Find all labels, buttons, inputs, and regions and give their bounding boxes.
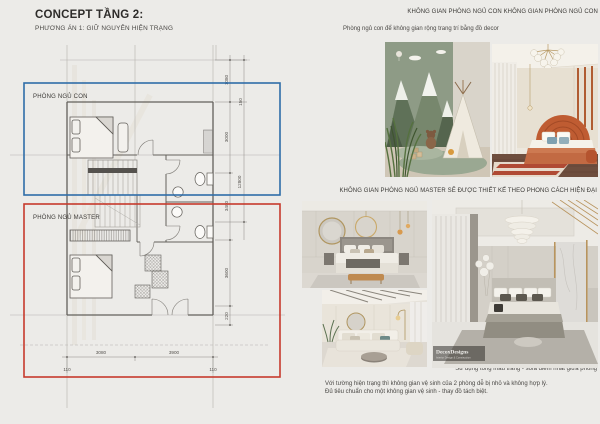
- dim-label: 3900: [169, 350, 180, 355]
- dim-label: 150: [238, 98, 243, 106]
- master-room-highlight-box: [24, 204, 280, 377]
- watermark-tagline: Interior Design & Construction: [436, 356, 471, 360]
- plan-background-watermark: [72, 65, 150, 345]
- master-table-set: [135, 255, 168, 298]
- photo-kids-room-orange-bed: [492, 44, 598, 177]
- kids-bench: [118, 123, 128, 152]
- child-section-caption: Phòng ngủ con để không gian rộng trang t…: [343, 26, 499, 32]
- window-hatched: [204, 130, 213, 153]
- child-section-header: KHÔNG GIAN PHÒNG NGỦ CON KHÔNG GIAN PHÒN…: [407, 9, 598, 15]
- page-title: CONCEPT TẦNG 2:: [35, 9, 143, 21]
- photo-master-living-sofa: [322, 290, 427, 367]
- note-line-2: Đủ tiêu chuẩn cho một không gian vệ sinh…: [325, 389, 488, 395]
- master-wardrobe: [70, 230, 130, 241]
- dim-label: 12800: [237, 175, 242, 188]
- dim-label: 3080: [96, 350, 107, 355]
- watermark-logo: DecoxDesigns: [436, 350, 468, 356]
- master-box-label: PHÒNG NGỦ MASTER: [33, 214, 100, 221]
- toilet: [195, 226, 213, 239]
- dim-label: 110: [63, 367, 71, 372]
- kids-bed: [70, 117, 113, 158]
- photo-master-bedroom-mirror: [302, 201, 427, 288]
- dim-label: 3400: [224, 200, 229, 211]
- dim-label: 110: [209, 367, 217, 372]
- child-box-label: PHÒNG NGỦ CON: [33, 93, 88, 100]
- photo-kids-room-teepee: [385, 42, 490, 177]
- toilet: [195, 173, 213, 186]
- concept-board: CONCEPT TẦNG 2: PHƯƠNG ÁN 1: GIỮ NGUYÊN …: [0, 0, 600, 424]
- sink: [172, 207, 182, 217]
- dim-label: 3000: [224, 131, 229, 142]
- page-subtitle: PHƯƠNG ÁN 1: GIỮ NGUYÊN HIỆN TRẠNG: [35, 25, 173, 32]
- dim-label: 3600: [224, 267, 229, 278]
- master-bed: [70, 255, 112, 298]
- photo-master-bedroom-large: DecoxDesigns Interior Design & Construct…: [432, 200, 598, 368]
- floor-plan: 1080 150 3000 12800 3400 3600 220 3080 3…: [0, 40, 320, 424]
- dim-label: 220: [224, 312, 229, 320]
- master-section-header: KHÔNG GIAN PHÒNG NGỦ MASTER SẼ ĐƯỢC THIẾ…: [339, 188, 597, 194]
- note-line-1: Với tường hiện trạng thì không gian vệ s…: [325, 381, 548, 387]
